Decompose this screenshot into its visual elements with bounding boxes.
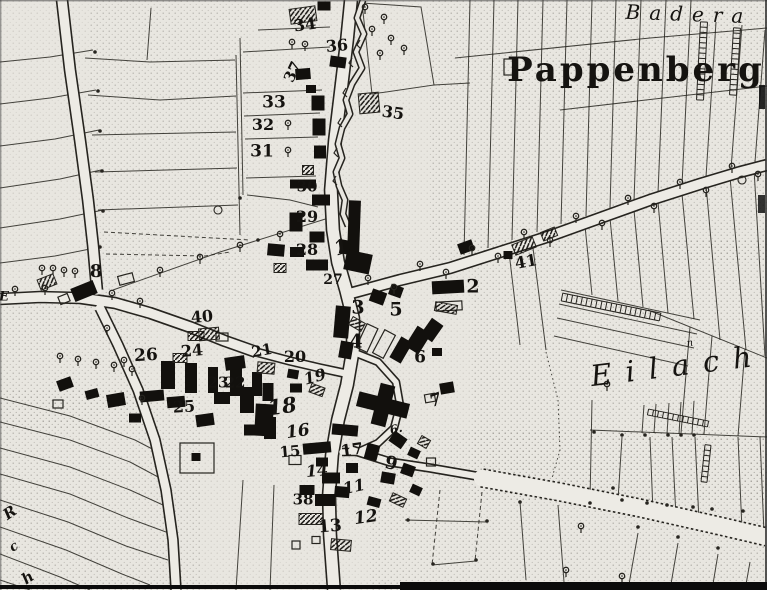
boundary-post-marker <box>101 209 105 213</box>
building-footprint <box>333 305 351 338</box>
building-footprint <box>300 485 315 495</box>
building-footprint <box>185 363 197 393</box>
boundary-post-marker <box>636 525 640 529</box>
building-footprint <box>329 55 346 68</box>
boundary-post-marker <box>741 509 745 513</box>
building-footprint <box>313 119 326 136</box>
building-footprint <box>254 404 274 437</box>
boundary-post-marker <box>645 501 649 505</box>
building-footprint-hatched <box>173 354 187 363</box>
building-footprint <box>432 280 465 295</box>
boundary-post-marker <box>518 500 522 504</box>
building-footprint-hatched <box>358 92 380 114</box>
boundary-post-marker <box>620 433 624 437</box>
boundary-post-marker <box>676 535 680 539</box>
building-footprint <box>334 486 350 498</box>
stipple-patch <box>370 430 767 590</box>
scan-border-mark <box>0 0 1 590</box>
building-footprint <box>332 423 359 436</box>
building-footprint <box>167 396 186 409</box>
boundary-post-marker <box>665 503 669 507</box>
boundary-post-marker <box>238 196 242 200</box>
boundary-post-marker <box>679 433 683 437</box>
building-footprint <box>306 260 328 271</box>
building-footprint <box>267 243 285 256</box>
building-footprint <box>287 369 299 380</box>
boundary-post-marker <box>98 245 102 249</box>
boundary-post-marker <box>611 486 615 490</box>
boundary-post-marker <box>692 433 696 437</box>
building-footprint-hatched <box>299 514 323 525</box>
building-footprint <box>263 383 274 401</box>
building-footprint <box>214 392 230 404</box>
boundary-post-marker <box>620 498 624 502</box>
building-footprint <box>316 458 328 467</box>
scan-border-mark <box>758 195 765 213</box>
building-footprint <box>224 355 246 371</box>
scan-border-mark <box>759 85 765 109</box>
building-footprint <box>195 413 214 427</box>
building-footprint-hatched <box>274 264 286 273</box>
boundary-post-marker <box>485 519 489 523</box>
building-footprint <box>129 414 141 423</box>
building-footprint-hatched <box>199 327 220 341</box>
building-footprint <box>295 68 311 80</box>
boundary-post-marker <box>474 558 478 562</box>
building-footprint <box>318 2 331 11</box>
building-footprint <box>312 96 325 111</box>
boundary-post-marker <box>666 433 670 437</box>
boundary-post-marker <box>96 89 100 93</box>
boundary-post-marker <box>406 518 410 522</box>
boundary-post-marker <box>710 507 714 511</box>
map-canvas[interactable]: 1234567891112131415161718192021222324252… <box>0 0 767 590</box>
building-footprint <box>312 195 330 206</box>
building-footprint <box>322 473 340 484</box>
boundary-post-marker <box>592 430 596 434</box>
building-footprint <box>208 367 218 393</box>
boundary-post-marker <box>588 501 592 505</box>
boundary-post-marker <box>691 505 695 509</box>
building-footprint-hatched <box>303 166 314 175</box>
building-footprint <box>192 453 201 461</box>
scan-border-mark <box>400 582 767 590</box>
building-footprint <box>290 247 304 257</box>
building-footprint <box>314 146 326 159</box>
map-drawing <box>0 0 767 590</box>
building-footprint-hatched <box>289 6 317 24</box>
building-footprint <box>432 348 442 356</box>
building-footprint <box>315 494 335 506</box>
building-footprint <box>504 251 513 259</box>
boundary-post-marker <box>93 50 97 54</box>
boundary-post-marker <box>643 433 647 437</box>
building-footprint <box>161 361 175 389</box>
building-footprint <box>346 463 358 473</box>
building-footprint <box>290 213 303 232</box>
boundary-post-marker <box>716 546 720 550</box>
building-footprint-hatched <box>331 539 352 552</box>
scan-border-mark <box>0 0 767 1</box>
building-footprint-hatched <box>257 362 275 374</box>
boundary-post-marker <box>431 562 435 566</box>
building-footprint <box>290 384 302 393</box>
building-footprint <box>310 232 325 243</box>
building-footprint <box>240 387 254 413</box>
boundary-post-marker <box>98 129 102 133</box>
boundary-post-marker <box>100 169 104 173</box>
boundary-post-marker <box>256 238 260 242</box>
building-footprint <box>290 180 316 189</box>
building-footprint <box>306 85 316 93</box>
